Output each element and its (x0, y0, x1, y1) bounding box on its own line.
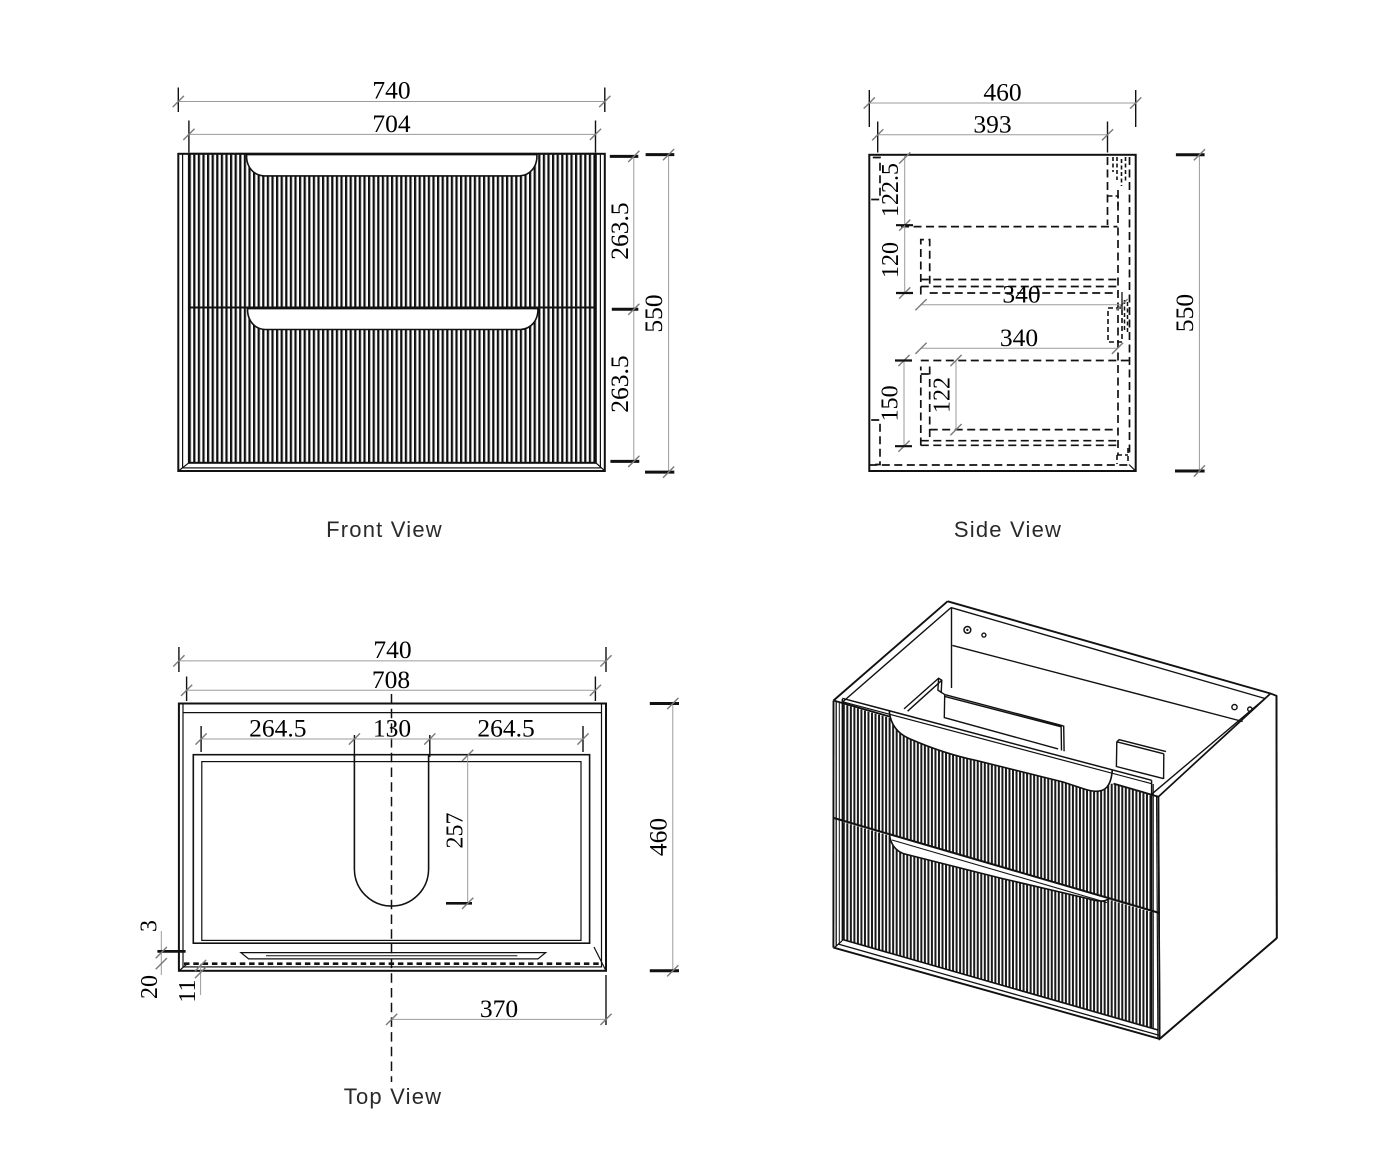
svg-text:120: 120 (878, 242, 904, 278)
svg-text:263.5: 263.5 (605, 202, 634, 259)
svg-text:550: 550 (1170, 294, 1199, 332)
svg-text:11: 11 (175, 979, 201, 1002)
svg-text:Front View: Front View (326, 517, 443, 542)
svg-text:393: 393 (973, 109, 1011, 138)
svg-text:122.5: 122.5 (878, 163, 904, 217)
svg-text:150: 150 (878, 385, 904, 421)
svg-text:370: 370 (480, 994, 518, 1023)
svg-text:263.5: 263.5 (605, 355, 634, 412)
svg-text:550: 550 (639, 294, 668, 332)
svg-text:264.5: 264.5 (477, 714, 534, 743)
svg-text:740: 740 (372, 76, 410, 105)
svg-text:704: 704 (372, 109, 411, 138)
svg-text:20: 20 (137, 975, 163, 999)
svg-text:460: 460 (983, 78, 1021, 107)
svg-text:264.5: 264.5 (249, 714, 306, 743)
svg-text:Top View: Top View (344, 1084, 442, 1109)
svg-text:340: 340 (1002, 280, 1040, 309)
svg-text:122: 122 (930, 377, 956, 413)
svg-text:460: 460 (643, 818, 672, 856)
svg-text:708: 708 (372, 665, 410, 694)
svg-text:3: 3 (137, 920, 163, 932)
svg-text:Side View: Side View (954, 517, 1062, 542)
svg-text:740: 740 (373, 635, 411, 664)
svg-text:130: 130 (373, 714, 411, 743)
svg-text:340: 340 (1000, 323, 1038, 352)
svg-text:257: 257 (443, 813, 469, 849)
